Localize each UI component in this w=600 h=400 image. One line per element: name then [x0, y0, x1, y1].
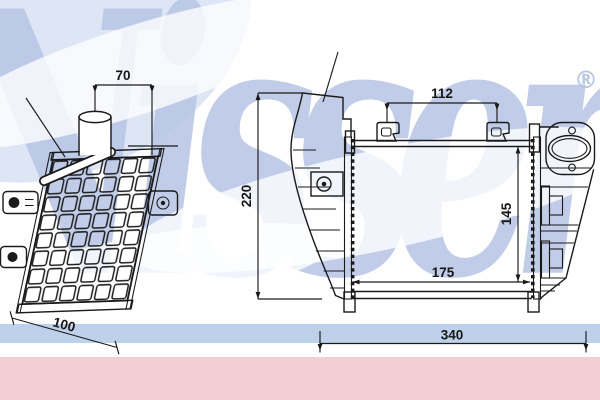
bottom-frame	[352, 292, 531, 299]
leader-line-right	[323, 52, 338, 102]
gasket-strip-left	[345, 137, 352, 299]
technical-drawing: 70 100	[0, 0, 600, 400]
dim-175-label: 175	[432, 265, 455, 280]
tank-hatch-lines	[293, 150, 344, 288]
dimension-width-overall: 340	[318, 328, 589, 353]
dimension-bracket-spacing: 112	[385, 86, 500, 122]
dimension-core-width: 175	[353, 265, 531, 284]
left-tank	[291, 93, 353, 299]
top-bracket-left	[377, 123, 399, 142]
bracket-lower-left	[1, 247, 27, 268]
leader-line-left	[26, 98, 65, 157]
inlet-pipe	[79, 111, 111, 155]
dimension-height-overall: 220	[239, 93, 322, 299]
flange-hole-top	[569, 127, 576, 134]
right-tank	[533, 123, 595, 300]
dim-145-label: 145	[499, 202, 514, 225]
screw-center	[322, 182, 327, 187]
tank-inner-bracket-upper	[542, 186, 563, 225]
dim-340-label: 340	[441, 328, 464, 343]
dim-220-label: 220	[239, 185, 254, 208]
bracket-upper-left	[3, 192, 38, 214]
top-bracket-right	[487, 123, 509, 142]
front-view: 112 220 145 175 340	[239, 52, 595, 353]
outlet-flange	[546, 123, 595, 175]
screw-plate	[311, 172, 343, 196]
dimension-depth: 100	[10, 311, 119, 354]
tank-inner-bracket-lower	[542, 241, 563, 278]
core-grid	[16, 149, 165, 313]
dimension-core-height: 145	[499, 147, 520, 282]
dim-100-label: 100	[51, 314, 77, 334]
dim-112-label: 112	[431, 86, 453, 101]
foot-left	[344, 292, 355, 312]
perspective-view: 70 100	[1, 68, 179, 354]
dim-70-label: 70	[115, 68, 130, 83]
